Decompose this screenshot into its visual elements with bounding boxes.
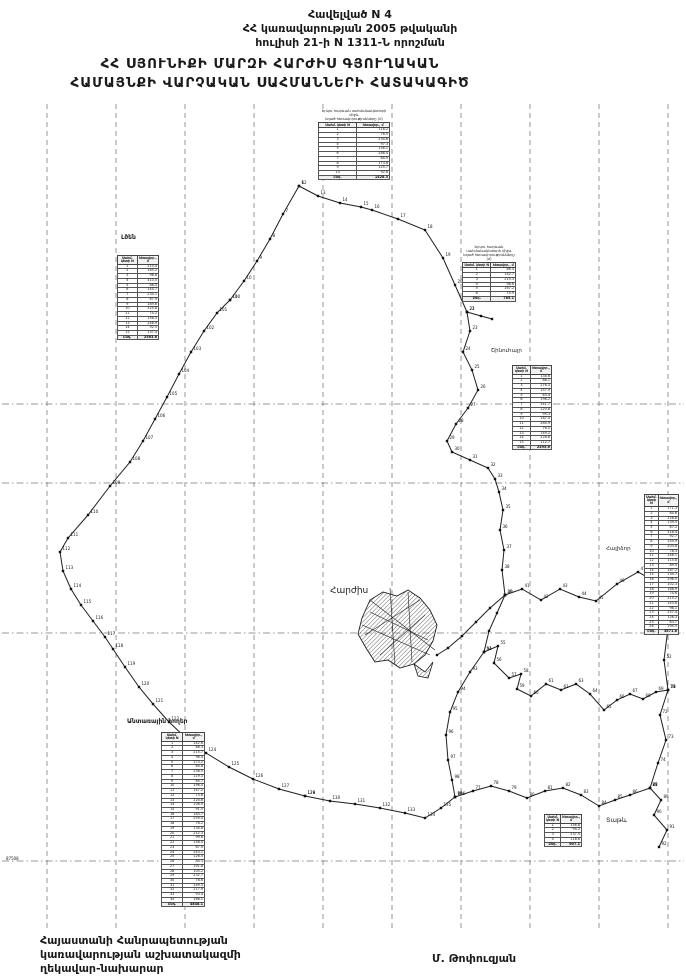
boundary-point: [559, 588, 561, 590]
boundary-point: [354, 803, 356, 805]
boundary-point-number: 109: [113, 480, 121, 485]
boundary-point: [142, 440, 144, 442]
boundary-point-number: 125: [232, 761, 240, 766]
boundary-point: [598, 805, 600, 807]
footer-organization: Հայաստանի Հանրապետության կառավարության ա…: [40, 934, 340, 976]
boundary-point-number: 95: [453, 706, 459, 711]
boundary-point-number: 88: [653, 782, 659, 787]
boundary-point: [447, 647, 449, 649]
table-column-header: հեռավոր., մ: [531, 366, 552, 375]
map-label-1: Շինուհայր: [491, 348, 522, 354]
boundary-point-number: 28: [459, 418, 465, 423]
table-column-header: հեռավոր., մ: [561, 815, 582, 824]
boundary-point: [660, 799, 662, 801]
boundary-point: [616, 583, 618, 585]
boundary-point: [424, 229, 426, 231]
boundary-point: [653, 814, 655, 816]
table-caption: Երկու հարևան սահմանակետերի միջևեղած հեռա…: [462, 245, 516, 261]
boundary-point: [152, 703, 154, 705]
boundary-point: [530, 695, 532, 697]
boundary-point-number: 43: [563, 583, 569, 588]
map-label-5: Անտառային հողեր: [127, 718, 188, 725]
boundary-point-number: 24: [466, 346, 472, 351]
boundary-point: [498, 491, 500, 493]
boundary-point: [489, 607, 491, 609]
table-total-row: Ընդ.607.1: [545, 842, 582, 847]
boundary-point: [520, 673, 522, 675]
table-column-header: Սահմ. կետի N: [162, 733, 183, 742]
boundary-point: [112, 648, 114, 650]
boundary-point-number: 78: [494, 780, 500, 785]
boundary-point: [501, 569, 503, 571]
boundary-point: [578, 596, 580, 598]
boundary-point: [190, 351, 192, 353]
boundary-point: [504, 594, 506, 596]
boundary-point-number: 16: [375, 204, 381, 209]
boundary-point-number: 129: [308, 790, 316, 795]
boundary-point: [166, 396, 168, 398]
boundary-point: [467, 407, 469, 409]
boundary-point-number: 63: [579, 678, 585, 683]
boundary-distance-table: Սահմ. կետի Nհեռավոր., մ1156.8294.23237.5…: [544, 814, 582, 847]
boundary-point: [278, 788, 280, 790]
boundary-point-number: 119: [128, 661, 136, 666]
boundary-point: [502, 509, 504, 511]
boundary-point-number: 132: [383, 802, 391, 807]
boundary-point: [317, 195, 319, 197]
boundary-point-number: 135: [444, 802, 452, 807]
coordinate-table-shinuhayr: Սահմ. կետի Nհեռավոր., մ1134.6288.13276.3…: [512, 365, 552, 450]
boundary-point: [490, 785, 492, 787]
boundary-point-number: 115: [84, 599, 92, 604]
boundary-point: [92, 620, 94, 622]
boundary-point: [494, 478, 496, 480]
boundary-point-number: 134: [428, 812, 436, 817]
boundary-point-number: 71: [671, 684, 677, 689]
boundary-point-number: 31: [473, 454, 479, 459]
table-total-cell: Ընդ.: [645, 630, 659, 635]
boundary-point: [404, 812, 406, 814]
boundary-point: [575, 683, 577, 685]
boundary-point: [595, 600, 597, 602]
boundary-point-number: 85: [618, 794, 624, 799]
boundary-point-number: 44: [582, 591, 588, 596]
boundary-point: [104, 636, 106, 638]
boundary-point-number: 23: [473, 325, 479, 330]
coordinate-table-tatev: Սահմ. կետի Nհեռավոր., մ1156.8294.23237.5…: [544, 814, 582, 847]
table-total-cell: Ընդ.: [545, 842, 561, 847]
boundary-point-number: 101: [220, 307, 228, 312]
boundary-point-number: 7: [286, 208, 289, 213]
boundary-point: [462, 351, 464, 353]
table-total-cell: Ընդ.: [463, 296, 491, 301]
boundary-point-number: 81: [548, 785, 554, 790]
boundary-point-number: 59: [520, 683, 526, 688]
boundary-point-number: 83: [584, 789, 590, 794]
boundary-point: [560, 689, 562, 691]
boundary-point: [480, 315, 482, 317]
boundary-point: [454, 796, 456, 798]
boundary-chain-north-east-spur: [467, 312, 492, 319]
table-total-cell: 1428.3: [357, 175, 390, 180]
table-total-cell: Ընդ.: [319, 175, 357, 180]
boundary-point-number: 80: [530, 792, 536, 797]
boundary-point: [282, 213, 284, 215]
boundary-point: [658, 846, 660, 848]
boundary-point-number: 111: [71, 532, 79, 537]
boundary-point: [629, 794, 631, 796]
boundary-point: [487, 467, 489, 469]
boundary-point: [475, 621, 477, 623]
boundary-point: [461, 635, 463, 637]
boundary-point: [666, 829, 668, 831]
boundary-point: [329, 800, 331, 802]
boundary-point: [129, 461, 131, 463]
boundary-point: [243, 280, 245, 282]
boundary-point: [304, 795, 306, 797]
boundary-point-number: 66: [620, 694, 626, 699]
boundary-chain-north-east-edge: [299, 186, 467, 312]
boundary-point-number: 57: [512, 672, 518, 677]
boundary-point: [138, 686, 140, 688]
table-column-header: Սահմ. կետի N: [545, 815, 561, 824]
boundary-point-number: 32: [491, 462, 497, 467]
boundary-point-number: 34: [502, 486, 508, 491]
boundary-point: [178, 373, 180, 375]
boundary-point: [397, 218, 399, 220]
boundary-point-number: 41: [525, 583, 531, 588]
boundary-point: [477, 389, 479, 391]
document-page: Հավելված N 4 ՀՀ կառավարության 2005 թվակա…: [0, 0, 686, 978]
boundary-point-number: 97: [451, 754, 457, 759]
boundary-point-number: 73: [669, 734, 675, 739]
boundary-point: [298, 185, 300, 187]
boundary-point: [457, 691, 459, 693]
boundary-point: [665, 739, 667, 741]
boundary-point-number: 131: [358, 798, 366, 803]
boundary-point: [493, 662, 495, 664]
boundary-point-number: 72: [663, 709, 669, 714]
boundary-point: [371, 209, 373, 211]
boundary-point: [252, 778, 254, 780]
map-label-2: Հալիձոր: [606, 546, 631, 552]
boundary-point: [508, 677, 510, 679]
boundary-point-number: 91: [670, 824, 676, 829]
map-label-3: Հարժիս: [330, 586, 368, 596]
boundary-point-number: 77: [476, 785, 482, 790]
boundary-point: [516, 688, 518, 690]
boundary-point-number: 113: [66, 565, 74, 570]
boundary-point-number: 58: [524, 668, 530, 673]
boundary-point: [67, 537, 69, 539]
boundary-distance-table: Սահմ. կետի Nհեռավոր., մ1171.3284.63226.8…: [644, 494, 679, 635]
table-total-cell: Ընդ.: [118, 335, 138, 340]
boundary-point-number: 18: [428, 224, 434, 229]
boundary-point-number: 104: [182, 368, 190, 373]
boundary-distance-table: Սահմ. կետի Nհեռավոր., մ1134.6288.13276.3…: [512, 365, 552, 450]
boundary-point: [521, 588, 523, 590]
boundary-point-number: 102: [207, 325, 215, 330]
map-label-4: Տաթև: [606, 816, 627, 824]
table-total-cell: 2495.6: [531, 445, 552, 450]
boundary-point: [466, 311, 468, 313]
boundary-point: [455, 423, 457, 425]
boundary-point-number: 84: [602, 800, 608, 805]
boundary-chain-south-west-connector: [446, 652, 484, 797]
boundary-point: [469, 330, 471, 332]
boundary-point: [540, 599, 542, 601]
boundary-point: [205, 752, 207, 754]
boundary-point-number: 79: [512, 785, 518, 790]
boundary-point: [655, 691, 657, 693]
boundary-point-number: 92: [662, 841, 668, 846]
boundary-point: [80, 604, 82, 606]
boundary-point-number: 13: [321, 190, 327, 195]
boundary-point-number: 126: [256, 773, 264, 778]
boundary-distance-table: Սահմ. կետի Nհեռավոր., մ1118.2276.53234.8…: [318, 122, 390, 180]
map-label-6: 87508: [6, 856, 19, 861]
boundary-point: [544, 790, 546, 792]
boundary-point: [269, 238, 271, 240]
boundary-point-number: 103: [194, 346, 202, 351]
boundary-point-number: 133: [408, 807, 416, 812]
boundary-point-number: 136: [458, 791, 466, 796]
table-total-cell: 785.1: [491, 296, 516, 301]
boundary-point: [637, 571, 639, 573]
boundary-point-number: 38: [505, 564, 511, 569]
boundary-point: [379, 807, 381, 809]
boundary-point-number: 45: [599, 595, 605, 600]
coordinate-table-halidzor: Սահմ. կետի Nհեռավոր., մ1171.3284.63226.8…: [644, 494, 679, 635]
boundary-point: [642, 698, 644, 700]
boundary-point-number: 15: [364, 201, 370, 206]
footer-org-line-1: Հայաստանի Հանրապետության: [40, 934, 340, 948]
boundary-point: [499, 529, 501, 531]
table-column-header: հեռավոր., մ: [137, 256, 158, 265]
boundary-point: [657, 762, 659, 764]
boundary-point: [87, 514, 89, 516]
boundary-point: [488, 630, 490, 632]
boundary-point-number: 90: [657, 809, 663, 814]
boundary-point-number: 114: [74, 583, 82, 588]
boundary-point: [442, 257, 444, 259]
boundary-point-number: 94: [461, 686, 467, 691]
boundary-point: [447, 759, 449, 761]
boundary-point: [424, 817, 426, 819]
boundary-point-number: 33: [498, 473, 504, 478]
boundary-point: [545, 683, 547, 685]
footer-org-line-3: ղեկավար-նախարար: [40, 962, 340, 976]
table-column-header: Սահմ. կետի N: [513, 366, 531, 375]
table-total-row: Ընդ.4848.1: [162, 902, 205, 907]
boundary-point: [154, 418, 156, 420]
boundary-point: [629, 693, 631, 695]
boundary-point-number: 61: [549, 678, 555, 683]
boundary-point-number: 110: [91, 509, 99, 514]
boundary-point-number: 127: [282, 783, 290, 788]
boundary-point-number: 118: [116, 643, 124, 648]
boundary-chain-north-west-edge: [230, 186, 299, 300]
table-total-row: Ընդ.785.1: [463, 296, 516, 301]
boundary-point-number: 74: [661, 757, 667, 762]
boundary-point-number: 89: [664, 794, 670, 799]
boundary-point-number: 26: [481, 384, 487, 389]
boundary-point-number: 60: [534, 690, 540, 695]
table-caption: Երկու հարևան սահմանակետերի միջևեղած հեռա…: [318, 109, 390, 121]
boundary-point: [603, 709, 605, 711]
boundary-point: [483, 651, 485, 653]
boundary-point: [503, 549, 505, 551]
boundary-point: [124, 666, 126, 668]
boundary-point-number: 25: [475, 364, 481, 369]
boundary-point: [469, 459, 471, 461]
boundary-point: [526, 797, 528, 799]
boundary-point: [228, 766, 230, 768]
boundary-point-number: 69: [659, 686, 665, 691]
boundary-point-number: 40: [508, 589, 514, 594]
coordinate-table-top-center: Երկու հարևան սահմանակետերի միջևեղած հեռա…: [318, 109, 390, 180]
table-total-row: Ընդ.2563.6: [118, 335, 159, 340]
table-column-header: Սահմ. կետի N: [645, 495, 659, 507]
coordinate-table-forest: Սահմ. կետի Nհեռավոր., մ1142.6288.33215.7…: [161, 732, 205, 907]
boundary-point-number: 42: [544, 594, 550, 599]
table-column-header: հեռավոր., մ: [183, 733, 205, 742]
boundary-point: [454, 284, 456, 286]
boundary-point-number: 37: [507, 544, 513, 549]
settlement-outline: [358, 590, 437, 668]
boundary-point: [360, 206, 362, 208]
footer-org-line-2: կառավարության աշխատակազմի: [40, 948, 340, 962]
boundary-point-number: 130: [333, 795, 341, 800]
boundary-point-number: 35: [506, 504, 512, 509]
boundary-point-number: 96: [449, 729, 455, 734]
boundary-point: [616, 699, 618, 701]
table-column-header: Սահմ. կետի N: [118, 256, 138, 265]
boundary-point: [496, 612, 498, 614]
boundary-point-number: 64: [593, 688, 599, 693]
boundary-point: [659, 714, 661, 716]
boundary-point: [59, 551, 61, 553]
table-total-cell: Ընդ.: [513, 445, 531, 450]
boundary-point-number: 27: [471, 402, 477, 407]
boundary-point: [562, 787, 564, 789]
boundary-point-number: 62: [564, 684, 570, 689]
boundary-point-number: 67: [633, 688, 639, 693]
boundary-point: [445, 734, 447, 736]
table-total-cell: 607.1: [561, 842, 582, 847]
table-total-row: Ընդ.2495.6: [513, 445, 552, 450]
boundary-point: [229, 299, 231, 301]
boundary-point-number: 52: [667, 654, 673, 659]
boundary-point: [580, 794, 582, 796]
boundary-point: [663, 659, 665, 661]
coordinate-table-top-right: Երկու հարևան սահմանակետերի միջևեղած հեռա…: [462, 245, 516, 302]
boundary-point: [436, 654, 438, 656]
boundary-point-number: 29: [450, 435, 456, 440]
boundary-point: [508, 790, 510, 792]
boundary-point: [449, 711, 451, 713]
boundary-point-number: 112: [63, 546, 71, 551]
boundary-point-number: 106: [158, 413, 166, 418]
boundary-point: [256, 260, 258, 262]
boundary-point-number: 55: [501, 640, 507, 645]
boundary-point-number: 98: [455, 774, 461, 779]
boundary-point-number: 105: [170, 391, 178, 396]
boundary-point-number: 10: [247, 275, 253, 280]
boundary-point-number: 8: [273, 233, 276, 238]
table-total-row: Ընդ.1428.3: [319, 175, 390, 180]
coordinate-grid: [2, 104, 684, 931]
boundary-point-number: 36: [503, 524, 509, 529]
boundary-point-number: 116: [96, 615, 104, 620]
boundary-point-number: 65: [607, 704, 613, 709]
boundary-chain-village-connector: [437, 595, 505, 655]
boundary-distance-table: Սահմ. կետի Nհեռավոր., մ1210.42185.2396.8…: [117, 255, 159, 340]
boundary-point: [469, 671, 471, 673]
boundary-point-number: 68: [646, 693, 652, 698]
boundary-point-number: 9: [260, 255, 263, 260]
boundary-point-number: 124: [209, 747, 217, 752]
boundary-point-number: 30: [455, 446, 461, 451]
settlement-tail: [414, 662, 433, 678]
boundary-point: [497, 645, 499, 647]
boundary-point-number: 17: [401, 213, 407, 218]
table-total-cell: 4848.1: [183, 902, 205, 907]
boundary-point: [491, 318, 493, 320]
boundary-point-number: 92: [487, 646, 493, 651]
boundary-point-number: 82: [566, 782, 572, 787]
boundary-point-number: 56: [497, 657, 503, 662]
boundary-point: [440, 807, 442, 809]
table-column-header: հեռավոր., մ: [658, 495, 678, 507]
boundary-point: [203, 330, 205, 332]
boundary-point: [451, 451, 453, 453]
boundary-point: [339, 202, 341, 204]
coordinate-table-ltsen: Սահմ. կետի Nհեռավոր., մ1210.42185.2396.8…: [117, 255, 159, 340]
boundary-point: [62, 570, 64, 572]
table-total-cell: Ընդ.: [162, 902, 183, 907]
table-total-row: Ընդ.3871.8: [645, 630, 679, 635]
boundary-point: [70, 588, 72, 590]
boundary-point: [667, 689, 669, 691]
boundary-point: [614, 799, 616, 801]
boundary-point-number: 46: [620, 578, 626, 583]
boundary-point-number: 120: [142, 681, 150, 686]
boundary-point: [589, 693, 591, 695]
table-total-cell: 3871.8: [658, 630, 678, 635]
boundary-point: [216, 312, 218, 314]
boundary-distance-table: Սահմ. կետի Nհեռավոր., մ1142.6288.33215.7…: [161, 732, 205, 907]
boundary-point-number: 14: [343, 197, 349, 202]
boundary-point: [109, 485, 111, 487]
boundary-point: [649, 787, 651, 789]
map-label-0: Լծեն: [121, 234, 136, 241]
boundary-point-number: 86: [633, 789, 639, 794]
boundary-chain-lobe-middle-chain: [484, 646, 668, 710]
boundary-point-number: 121: [156, 698, 164, 703]
table-total-cell: 2563.6: [137, 335, 158, 340]
boundary-point: [471, 369, 473, 371]
signature-name: Մ. Թոփուզյան: [432, 952, 516, 965]
boundary-point: [472, 790, 474, 792]
boundary-point-number: 100: [233, 294, 241, 299]
boundary-point-number: 22: [470, 306, 476, 311]
boundary-point-number: 93: [473, 666, 479, 671]
boundary-point: [446, 440, 448, 442]
boundary-point-number: 19: [446, 252, 452, 257]
boundary-point-number: 117: [108, 631, 116, 636]
boundary-point-number: 107: [146, 435, 154, 440]
